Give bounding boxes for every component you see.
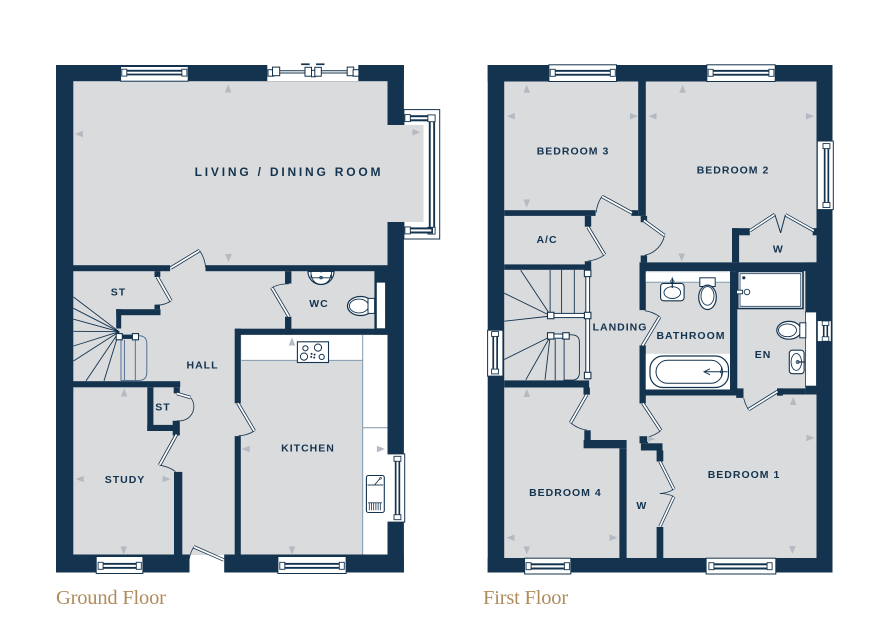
- svg-text:WC: WC: [309, 298, 329, 310]
- svg-text:KITCHEN: KITCHEN: [281, 443, 335, 455]
- svg-text:BEDROOM 2: BEDROOM 2: [697, 165, 770, 177]
- svg-text:BATHROOM: BATHROOM: [656, 330, 725, 342]
- svg-text:W: W: [636, 500, 647, 512]
- svg-text:STUDY: STUDY: [105, 474, 146, 486]
- svg-text:ST: ST: [155, 402, 170, 414]
- svg-text:A/C: A/C: [536, 234, 557, 246]
- svg-text:Ground Floor: Ground Floor: [56, 587, 166, 609]
- svg-text:HALL: HALL: [187, 360, 219, 372]
- svg-text:W: W: [773, 244, 784, 256]
- svg-text:BEDROOM 3: BEDROOM 3: [537, 146, 610, 158]
- svg-text:BEDROOM 1: BEDROOM 1: [708, 469, 781, 481]
- svg-text:LANDING: LANDING: [593, 322, 648, 334]
- svg-text:BEDROOM 4: BEDROOM 4: [529, 487, 602, 499]
- svg-text:EN: EN: [755, 349, 772, 361]
- svg-text:LIVING / DINING ROOM: LIVING / DINING ROOM: [195, 165, 384, 179]
- svg-text:ST: ST: [111, 287, 126, 299]
- svg-text:First Floor: First Floor: [483, 587, 568, 609]
